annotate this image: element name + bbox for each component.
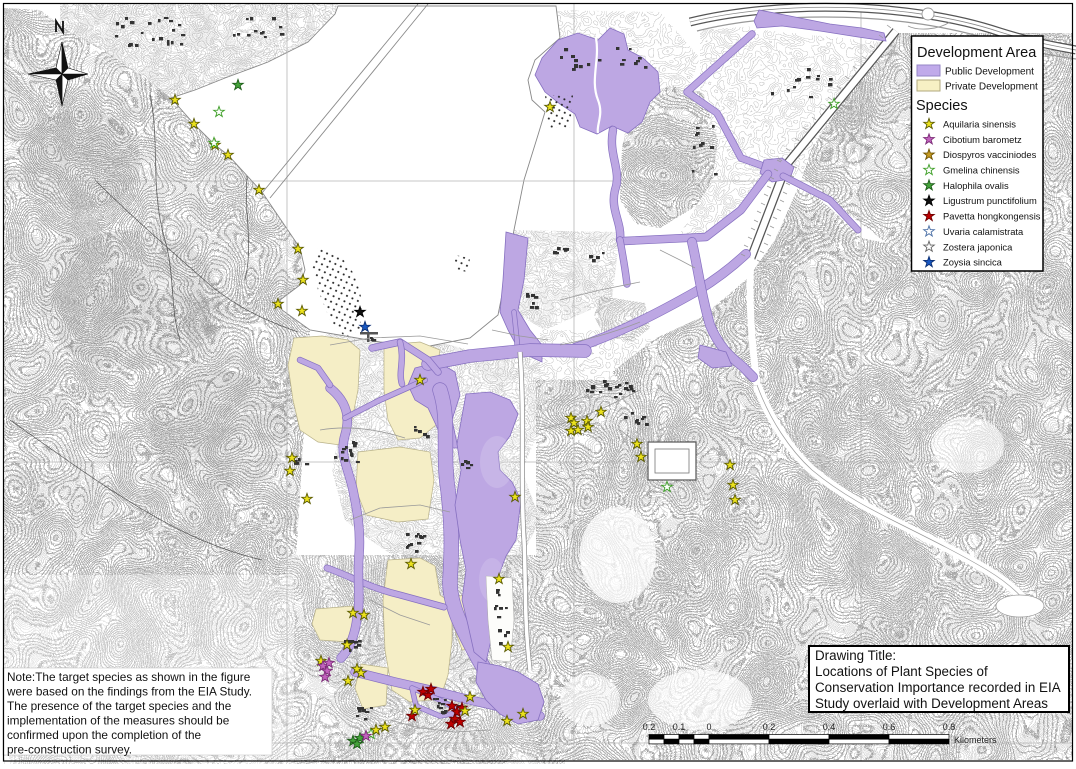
svg-text:Zostera japonica: Zostera japonica: [943, 241, 1013, 252]
svg-text:Pavetta hongkongensis: Pavetta hongkongensis: [943, 211, 1041, 222]
svg-text:Public Development: Public Development: [945, 67, 1034, 78]
svg-text:Diospyros vacciniodes: Diospyros vacciniodes: [943, 149, 1037, 160]
svg-text:Development Area: Development Area: [917, 45, 1037, 61]
svg-text:were based on the findings fro: were based on the findings from the EIA …: [6, 685, 252, 699]
svg-text:Kilometers: Kilometers: [954, 735, 997, 745]
svg-text:The presence of the target spe: The presence of the target species and t…: [7, 699, 232, 713]
svg-text:Species: Species: [916, 98, 968, 114]
svg-text:0.2: 0.2: [643, 722, 656, 732]
svg-text:implementation of the measures: implementation of the measures should be: [7, 714, 230, 728]
svg-text:Note:The target species as sho: Note:The target species as shown in the …: [7, 670, 251, 684]
svg-text:Gmelina chinensis: Gmelina chinensis: [943, 165, 1020, 176]
svg-text:pre-construction survey.: pre-construction survey.: [7, 743, 132, 757]
svg-text:0.1: 0.1: [673, 722, 686, 732]
svg-text:Locations of Plant Species of: Locations of Plant Species of: [815, 664, 988, 679]
svg-text:Conservation Importance record: Conservation Importance recorded in EIA: [815, 680, 1061, 695]
svg-text:Study overlaid with Developmen: Study overlaid with Development Areas: [815, 696, 1048, 711]
svg-text:Private Development: Private Development: [945, 82, 1038, 93]
svg-text:Drawing Title:: Drawing Title:: [815, 648, 896, 663]
svg-text:0.2: 0.2: [763, 722, 776, 732]
svg-text:0.4: 0.4: [823, 722, 836, 732]
svg-text:0.8: 0.8: [943, 722, 956, 732]
svg-text:Aquilaria sinensis: Aquilaria sinensis: [943, 119, 1016, 130]
svg-text:Ligustrum punctifolium: Ligustrum punctifolium: [943, 195, 1037, 206]
svg-text:0: 0: [706, 722, 711, 732]
svg-text:Cibotium barometz: Cibotium barometz: [943, 134, 1022, 145]
svg-text:Halophila ovalis: Halophila ovalis: [943, 180, 1009, 191]
svg-text:0.6: 0.6: [883, 722, 896, 732]
svg-text:Uvaria cala­mistrata: Uvaria cala­mistrata: [943, 226, 1024, 237]
svg-text:Zoysia sincica: Zoysia sincica: [943, 257, 1003, 268]
svg-text:confirmed upon the completion: confirmed upon the completion of the: [7, 728, 202, 742]
